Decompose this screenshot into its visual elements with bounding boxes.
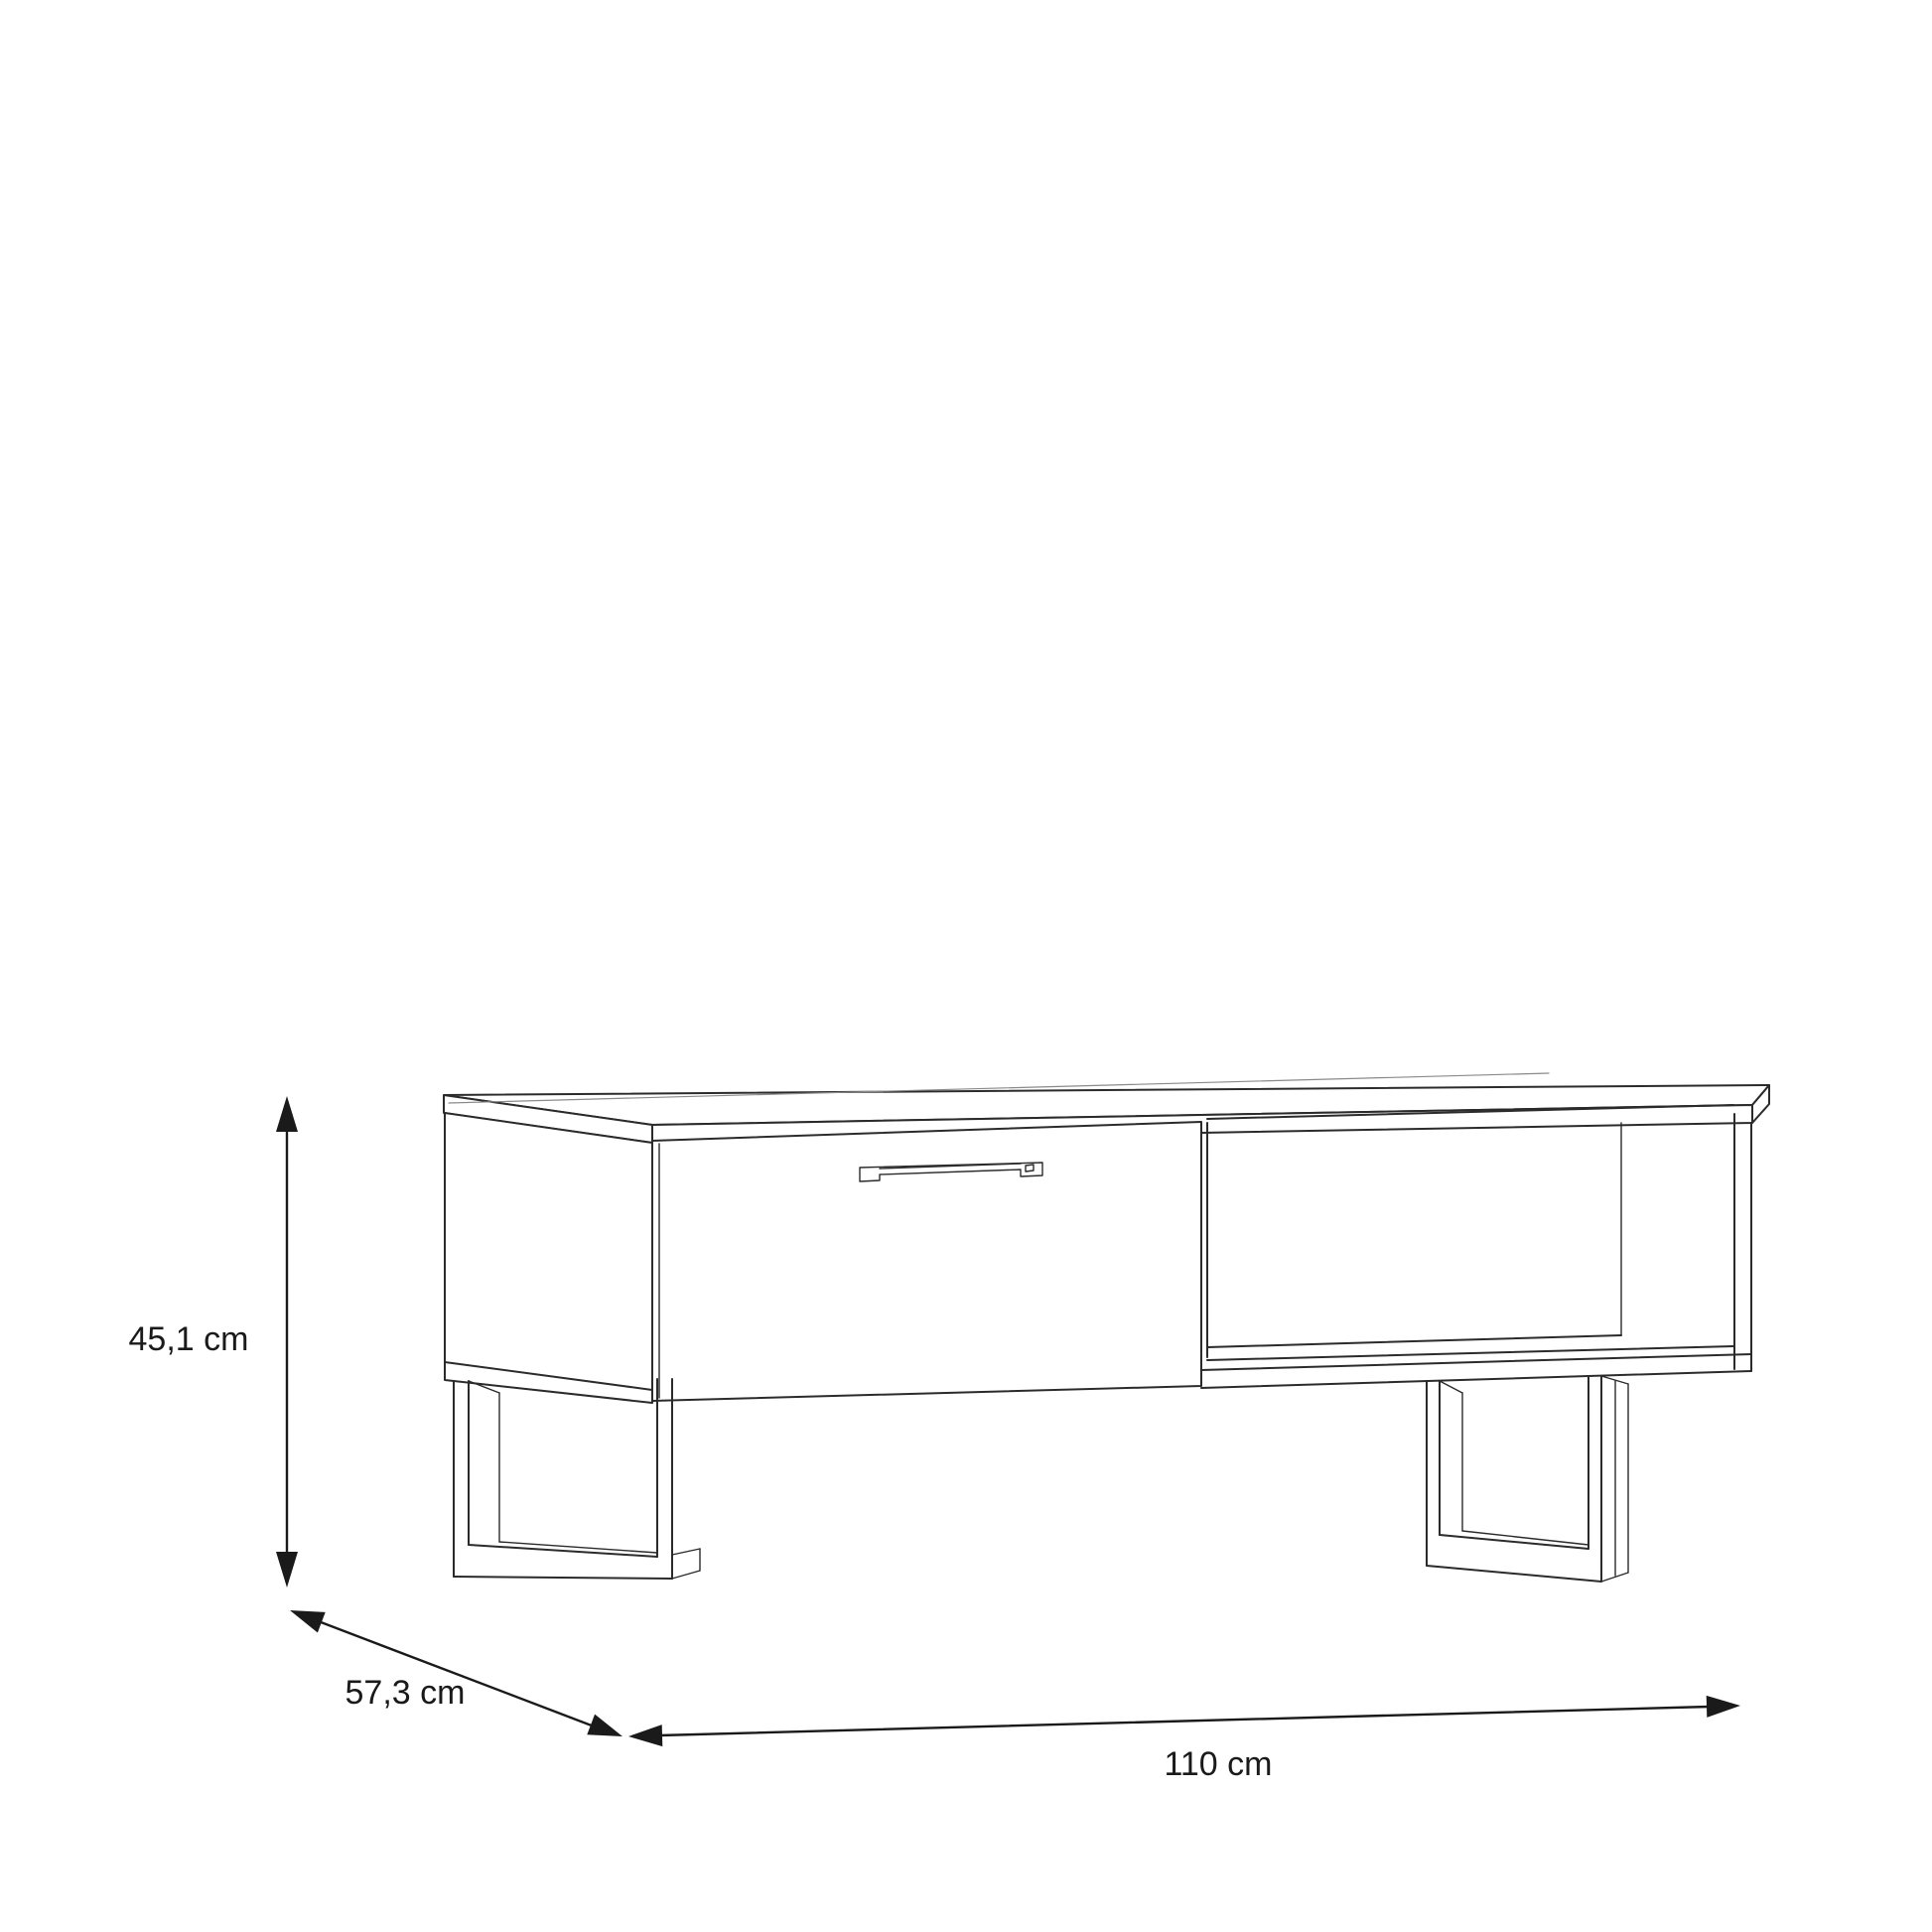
dimension-drawing-page: 45,1 cm 57,3 cm 110 cm bbox=[0, 0, 1932, 1932]
furniture-drawing bbox=[444, 1073, 1769, 1582]
height-dimension-label: 45,1 cm bbox=[129, 1320, 249, 1358]
width-dimension-label: 110 cm bbox=[1165, 1745, 1273, 1783]
depth-dimension: 57,3 cm bbox=[290, 1610, 622, 1736]
drawer-front bbox=[652, 1122, 1201, 1401]
depth-dimension-label: 57,3 cm bbox=[345, 1674, 466, 1712]
right-sled-leg bbox=[1427, 1376, 1628, 1582]
open-compartment bbox=[1207, 1105, 1751, 1369]
height-dimension: 45,1 cm bbox=[129, 1096, 298, 1587]
furniture-dimension-drawing: 45,1 cm 57,3 cm 110 cm bbox=[0, 0, 1932, 1932]
bottom-panel bbox=[1201, 1354, 1751, 1388]
width-dimension: 110 cm bbox=[628, 1696, 1740, 1783]
left-side-panel bbox=[445, 1113, 652, 1403]
left-sled-leg bbox=[454, 1379, 700, 1579]
